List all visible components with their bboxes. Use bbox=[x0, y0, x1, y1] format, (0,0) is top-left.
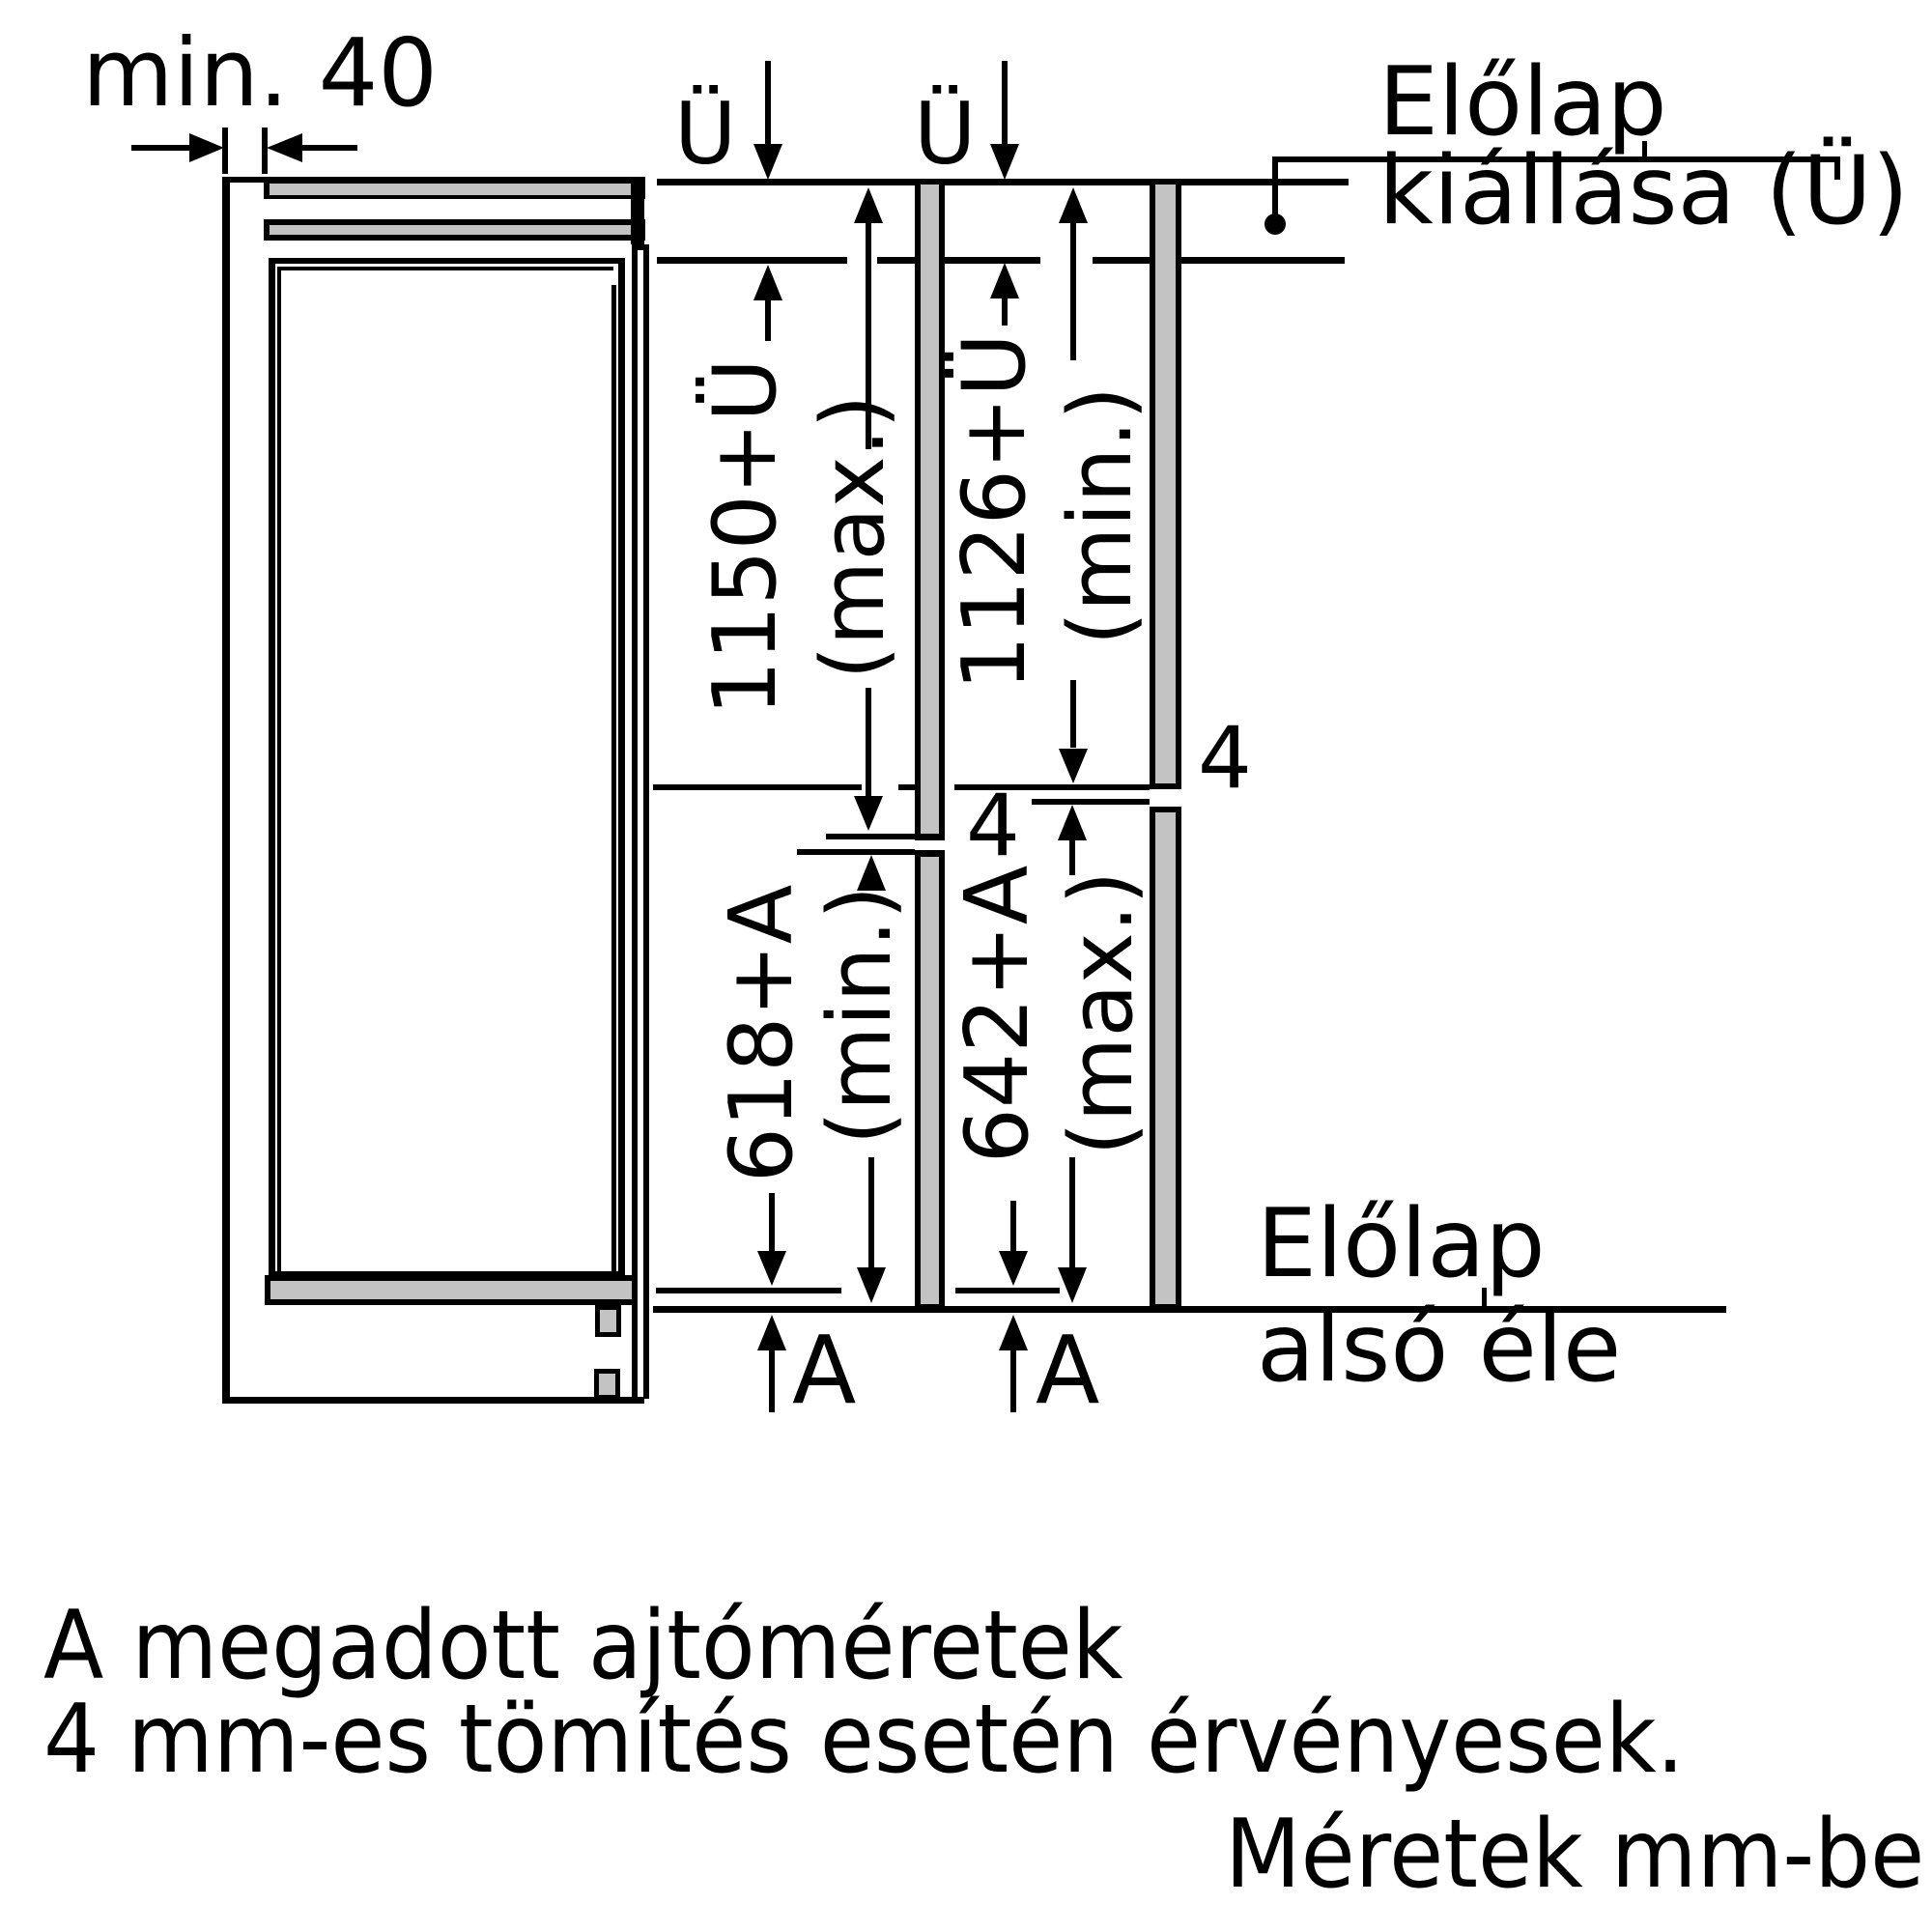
leader-top-dot bbox=[1264, 213, 1286, 235]
min40-arrow-right-head bbox=[267, 133, 302, 162]
panel-bar-left-lower-fill bbox=[921, 857, 939, 1304]
col-left-upper-down-head bbox=[854, 796, 883, 831]
col-left-lower-down-head bbox=[857, 1267, 886, 1303]
note-line2: 4 mm-es tömítés esetén érvényesek. bbox=[43, 1692, 1685, 1787]
cabinet-left-wall bbox=[222, 177, 230, 1404]
hinge-block-2-fill bbox=[599, 1374, 615, 1395]
bottom-overhang-label-right: A bbox=[1036, 1323, 1099, 1417]
appliance-top bbox=[269, 258, 625, 264]
appliance-right bbox=[618, 258, 625, 1277]
dim-right-lower-qualifier: (max.) bbox=[1059, 871, 1146, 1156]
overhang-line-seg3 bbox=[945, 257, 1040, 264]
cabinet-side-view bbox=[222, 177, 649, 1404]
col-right-upper-up-shaft bbox=[1070, 223, 1076, 360]
min40-tick-left bbox=[222, 128, 228, 174]
dim-left-upper-value: 1150+Ü bbox=[702, 358, 789, 716]
overhang-symbol-right: Ü bbox=[914, 92, 976, 177]
overhang-symbol-left: Ü bbox=[674, 92, 736, 177]
col-left-lower-down-shaft bbox=[868, 1157, 874, 1267]
panel-top-edge-line bbox=[657, 179, 1349, 185]
u-right-down-head bbox=[990, 144, 1019, 180]
col-right-a-up-shaft bbox=[1010, 1350, 1016, 1412]
col-right-upper-down-head bbox=[1059, 749, 1088, 783]
col-right-lower-up-head bbox=[1058, 805, 1087, 840]
min40-dimension bbox=[131, 128, 357, 174]
front-panel-overhang-label-line2: kiállása (Ü) bbox=[1378, 144, 1909, 239]
top-rail-1-fill bbox=[270, 184, 639, 195]
min40-arrow-left-head bbox=[189, 133, 224, 162]
overhang-line-seg4 bbox=[1093, 257, 1150, 264]
u-right-down-shaft bbox=[1002, 61, 1008, 146]
u-right-up-shaft bbox=[1002, 298, 1008, 326]
col-left-a-down-head bbox=[757, 1251, 786, 1286]
cabinet-bottom-edge bbox=[222, 1397, 644, 1404]
split-a-lower-line bbox=[797, 849, 915, 855]
u-left-down-shaft bbox=[765, 61, 771, 146]
note-line1: A megadott ajtóméretek bbox=[43, 1599, 1123, 1693]
overhang-line-seg5 bbox=[1181, 257, 1345, 264]
col-right-upper-up-head bbox=[1059, 187, 1088, 223]
split-a-upper-line bbox=[826, 834, 915, 839]
split-b-line-seg1 bbox=[653, 784, 862, 790]
gap-label-left: 4 bbox=[966, 783, 1020, 868]
panel-bar-right-lower-fill bbox=[1155, 812, 1176, 1304]
u-right-up-head bbox=[990, 263, 1019, 298]
appliance-left bbox=[269, 258, 275, 1277]
dim-left-upper-qualifier: (max.) bbox=[810, 395, 897, 680]
appliance-bottom-line-seg1 bbox=[656, 1288, 841, 1293]
u-left-down-head bbox=[753, 144, 782, 180]
panel-bar-left-upper-fill bbox=[921, 185, 939, 834]
installation-diagram: min. 40 Ü Ü Előlap kiállása (Ü) 1150+Ü (… bbox=[0, 0, 1932, 1932]
plinth-fill bbox=[270, 1281, 632, 1299]
col-right-lower-down-shaft bbox=[1069, 1157, 1075, 1267]
col-right-a-down-shaft bbox=[1010, 1201, 1016, 1251]
dim-right-upper-value: 1126+Ü bbox=[952, 333, 1038, 691]
gap-label-right: 4 bbox=[1198, 716, 1252, 801]
col-right-a-down-head bbox=[999, 1251, 1028, 1286]
dim-left-lower-value: 618+A bbox=[719, 885, 806, 1183]
col-right-a-up-head bbox=[999, 1315, 1028, 1350]
overhang-line-seg1 bbox=[657, 257, 847, 264]
dim-left-lower-qualifier: (min.) bbox=[817, 886, 904, 1146]
u-left-up-head bbox=[753, 265, 782, 300]
split-b-lower-line bbox=[1032, 799, 1150, 805]
appliance-inner-left bbox=[277, 267, 281, 1277]
dim-right-lower-value: 642+A bbox=[954, 866, 1041, 1164]
min40-arrow-right-shaft bbox=[302, 145, 357, 151]
col-right-lower-down-head bbox=[1058, 1267, 1087, 1303]
overhang-arrows bbox=[753, 61, 1019, 341]
col-left-a-up-head bbox=[757, 1315, 786, 1350]
front-panel-bottom-label-line1: Előlap bbox=[1257, 1197, 1546, 1292]
col-left-a-down-shaft bbox=[769, 1193, 775, 1251]
hinge-block-1-fill bbox=[600, 1310, 616, 1332]
split-b-line-seg2 bbox=[898, 784, 916, 790]
min-clearance-label: min. 40 bbox=[82, 26, 438, 120]
front-panel-right-line bbox=[643, 244, 649, 1399]
col-right-upper-down-shaft bbox=[1070, 680, 1076, 748]
units-note: Méretek mm-be bbox=[1225, 1807, 1924, 1902]
appliance-inner-top bbox=[277, 267, 613, 270]
appliance-bottom-line-seg2 bbox=[955, 1288, 1060, 1293]
panel-bar-right-upper-fill bbox=[1155, 185, 1176, 783]
front-panel-left-line bbox=[632, 244, 638, 1399]
u-left-up-shaft bbox=[765, 300, 771, 341]
leader-lines bbox=[1264, 141, 1840, 1306]
leader-top-vertical bbox=[1272, 156, 1278, 218]
appliance-inner-right bbox=[611, 285, 616, 1271]
overhang-line-seg2 bbox=[877, 257, 915, 264]
bottom-overhang-label-left: A bbox=[792, 1323, 856, 1417]
top-rail-2-fill bbox=[270, 225, 639, 235]
col-left-upper-up-head bbox=[854, 187, 883, 223]
col-left-upper-down-shaft bbox=[866, 688, 871, 796]
col-left-a-up-shaft bbox=[769, 1350, 775, 1412]
cabinet-right-stub bbox=[631, 179, 644, 244]
dim-right-upper-qualifier: (min.) bbox=[1058, 386, 1145, 646]
front-panel-bottom-label-line2: alsó éle bbox=[1257, 1301, 1621, 1396]
min40-arrow-left-shaft bbox=[131, 145, 189, 151]
min40-tick-right bbox=[262, 128, 268, 174]
